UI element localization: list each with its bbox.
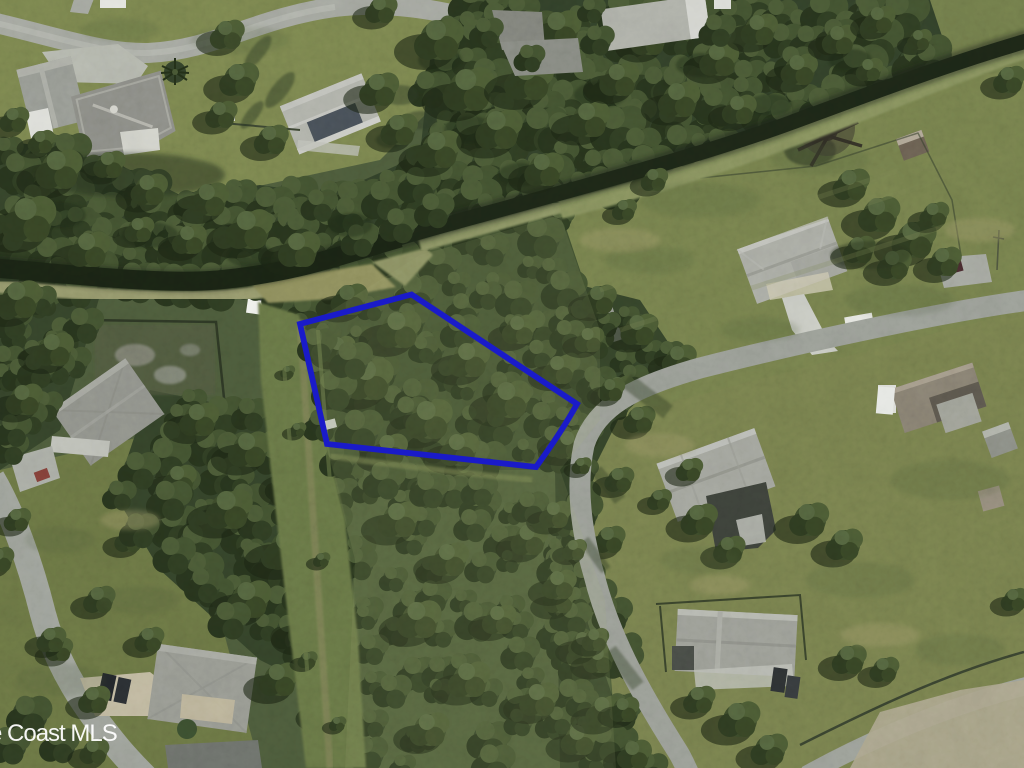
svg-text:e Coast MLS: e Coast MLS	[0, 720, 117, 747]
